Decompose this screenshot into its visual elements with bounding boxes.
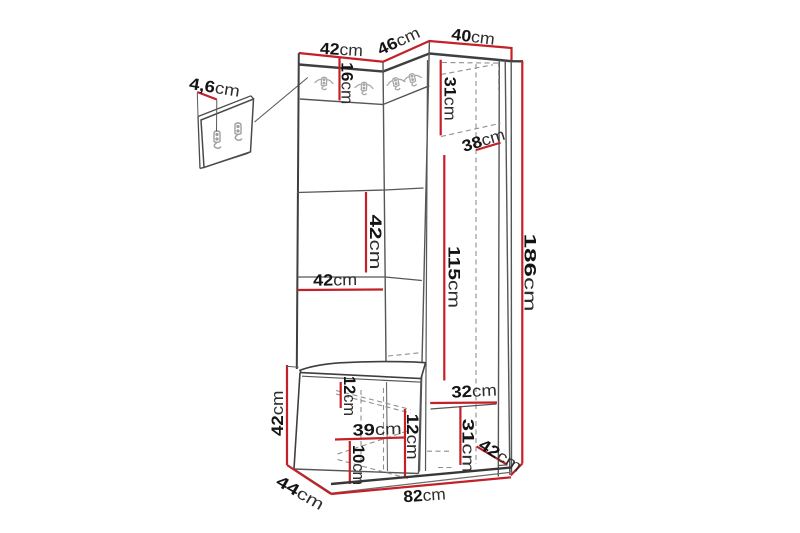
svg-text:31cm: 31cm — [458, 419, 477, 473]
svg-text:42cm: 42cm — [313, 270, 357, 290]
svg-text:10cm: 10cm — [349, 445, 367, 485]
svg-text:42cm: 42cm — [268, 390, 287, 436]
svg-text:16cm: 16cm — [337, 62, 356, 104]
svg-text:82cm: 82cm — [403, 485, 447, 506]
svg-text:12cm: 12cm — [403, 414, 422, 460]
svg-text:186cm: 186cm — [521, 234, 540, 312]
svg-text:115cm: 115cm — [445, 246, 463, 308]
svg-text:32cm: 32cm — [451, 380, 497, 401]
svg-text:31cm: 31cm — [441, 77, 460, 121]
svg-text:42cm: 42cm — [366, 215, 384, 270]
svg-text:12cm: 12cm — [340, 376, 358, 416]
svg-text:39cm: 39cm — [352, 419, 402, 440]
svg-text:42cm: 42cm — [319, 39, 363, 60]
